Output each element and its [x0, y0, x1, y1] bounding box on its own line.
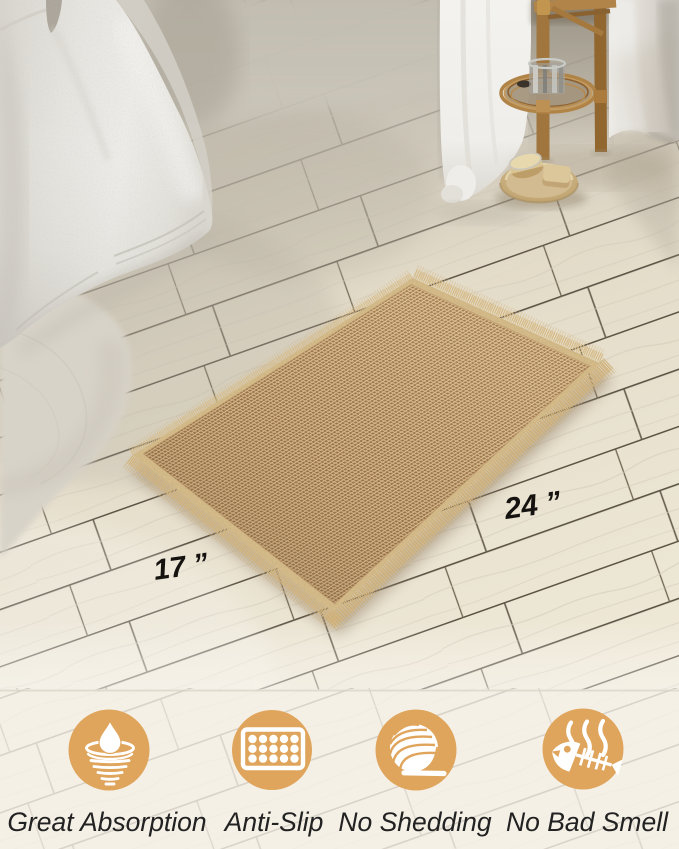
svg-text:Great Absorption: Great Absorption: [7, 807, 206, 837]
svg-text:No Bad Smell: No Bad Smell: [506, 807, 669, 837]
svg-text:Anti-Slip: Anti-Slip: [223, 807, 324, 837]
svg-text:No Shedding: No Shedding: [338, 807, 491, 837]
